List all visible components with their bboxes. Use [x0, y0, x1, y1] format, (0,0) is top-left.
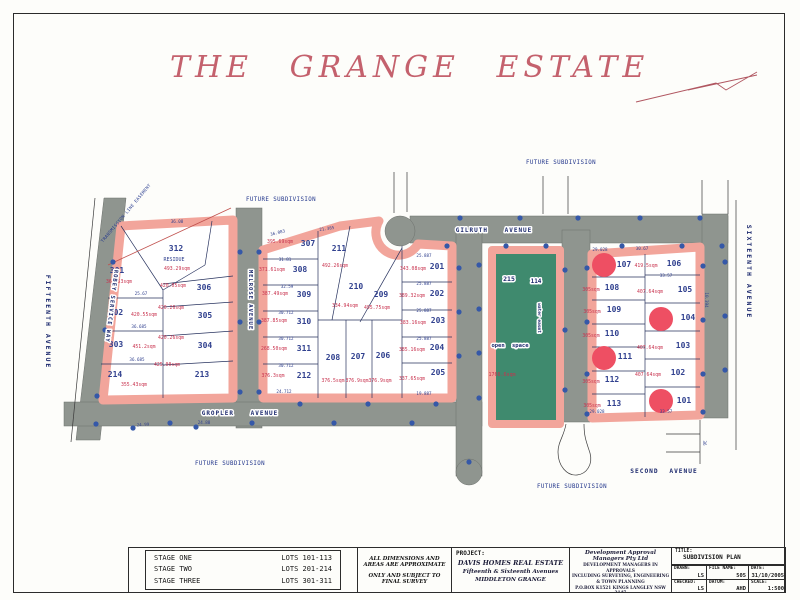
lot-area: 343.08sqm — [400, 266, 426, 272]
lot-number: 110 — [605, 329, 620, 338]
survey-marker-dot — [433, 401, 438, 406]
survey-marker-dot — [562, 387, 567, 392]
survey-marker-dot — [584, 371, 589, 376]
survey-marker-dot — [679, 243, 684, 248]
lot-number: 307 — [301, 239, 316, 248]
dimension-label: 25.887 — [416, 281, 432, 286]
field-drawn: DRAWN: LS — [672, 565, 706, 579]
gilruth-cul-de-sac-bulb — [385, 216, 415, 246]
field-label: DATUM: — [709, 580, 746, 585]
survey-marker-dot — [94, 393, 99, 398]
lot-number: 105 — [678, 285, 693, 294]
survey-marker-dot — [476, 306, 481, 311]
survey-marker-dot — [562, 327, 567, 332]
survey-marker-dot — [637, 215, 642, 220]
survey-marker-dot — [130, 425, 135, 430]
survey-marker-dot — [444, 243, 449, 248]
lot-number: 107 — [617, 260, 632, 269]
road-right — [562, 230, 590, 422]
lot-area: 337.65sqm — [399, 376, 425, 382]
survey-marker-dot — [700, 317, 705, 322]
future-subdivision-label: FUTURE SUBDIVISION — [537, 484, 607, 490]
title-fields-grid: DRAWN: LS FILE NAME: 505 DATE: 31/10/200… — [672, 565, 785, 592]
survey-marker-dot — [584, 319, 589, 324]
dimension-label: 24.99 — [136, 422, 149, 428]
survey-marker-dot — [619, 243, 624, 248]
survey-marker-dot — [110, 259, 115, 264]
dimension-label: 30.712 — [278, 363, 294, 368]
lot-number: 106 — [667, 259, 682, 268]
lot-area: 407.64sqm — [637, 289, 663, 295]
lot-area: 365.53sqm — [106, 279, 132, 285]
lot-number: 310 — [297, 317, 312, 326]
lot-area: 389.32sqm — [399, 293, 425, 299]
lot-number: 202 — [430, 289, 445, 298]
lot-area: 420.55sqm — [131, 312, 157, 318]
lot-number: 101 — [677, 396, 692, 405]
street-label-melrose: MELROSE AVENUE — [247, 270, 253, 330]
dimension-label: 36.685 — [131, 324, 147, 329]
lot-area: 420.26sqm — [158, 305, 184, 311]
field-datum: DATUM: AHD — [706, 579, 748, 593]
lot-number: 205 — [431, 368, 446, 377]
lot-area: 425.00sqm — [154, 362, 180, 368]
survey-marker-dot — [256, 249, 261, 254]
project-label: PROJECT: — [456, 550, 565, 557]
lot-area: 371.61sqm — [259, 267, 285, 273]
consultant-line: INCLUDING SURVEYING, ENGINEERING & TOWN … — [570, 573, 671, 584]
lot-number: 210 — [349, 282, 364, 291]
survey-marker-dot — [331, 420, 336, 425]
drawing-title: TITLE: SUBDIVISION PLAN — [672, 548, 785, 565]
lot-area: 420.26sqm — [158, 335, 184, 341]
lot-note: RESIDUE — [163, 257, 184, 263]
dimension-label: 31.81 — [279, 257, 292, 262]
future-subdivision-label: FUTURE SUBDIVISION — [246, 197, 316, 203]
stage-lots: LOTS 301-311 — [281, 576, 332, 587]
survey-marker-dot — [476, 262, 481, 267]
lot-area: 376.9sqm — [368, 378, 391, 384]
water-easement-label: water easmt — [536, 303, 542, 333]
lot-area: 495.75sqm — [364, 305, 390, 311]
stage-lots: LOTS 101-113 — [281, 553, 332, 564]
future-culdesac-outline — [558, 424, 591, 475]
lot-number: 212 — [297, 371, 312, 380]
survey-marker-dot — [719, 243, 724, 248]
field-label: DRAWN: — [674, 566, 704, 571]
field-value: AHD — [709, 586, 746, 592]
project-name: DAVIS HOMES REAL ESTATE — [456, 559, 565, 567]
stage-row: STAGE TWO LOTS 201-214 — [154, 564, 332, 575]
drawing-title-box: TITLE: SUBDIVISION PLAN DRAWN: LS FILE N… — [672, 547, 786, 593]
survey-marker-dot — [237, 319, 242, 324]
lot-area: 420.05sqm — [160, 283, 186, 289]
lot-number: 209 — [374, 290, 389, 299]
title-block: STAGE ONE LOTS 101-113 STAGE TWO LOTS 20… — [128, 547, 786, 593]
dimension-label: 30.712 — [278, 336, 294, 341]
lot-area: 419.5sqm — [634, 263, 657, 269]
stages-box: STAGE ONE LOTS 101-113 STAGE TWO LOTS 20… — [128, 547, 358, 593]
dimension-label: 19.887 — [416, 391, 432, 396]
survey-marker-dot — [456, 265, 461, 270]
dimension-label: 36.685 — [129, 357, 145, 362]
survey-marker-dot — [722, 367, 727, 372]
lot-number: 113 — [607, 399, 622, 408]
open-space-area: 1766.6sqm — [488, 372, 515, 378]
lot-area: 268.50sqm — [261, 346, 287, 352]
dimension-label: 10.394 — [704, 292, 709, 308]
survey-marker-dot — [700, 409, 705, 414]
future-subdivision-label: FUTURE SUBDIVISION — [195, 461, 265, 467]
survey-marker-dot — [237, 249, 242, 254]
dimension-label: 30.712 — [278, 310, 294, 315]
survey-marker-dot — [700, 263, 705, 268]
lot-area: 376.9sqm — [345, 378, 368, 384]
dimension-label: 24.712 — [276, 389, 292, 394]
project-box: PROJECT: DAVIS HOMES REAL ESTATE Fifteen… — [452, 547, 570, 593]
street-label-sixteenth: SIXTEENTH AVENUE — [745, 225, 753, 320]
field-label: DATE: — [751, 566, 784, 571]
lot-number: 109 — [607, 305, 622, 314]
dimension-label: 33.57 — [660, 273, 673, 278]
sold-lot-marker — [649, 307, 673, 331]
lot-area: 407.64sqm — [637, 345, 663, 351]
dimension-label: 29.028 — [592, 247, 608, 252]
consultant-box: Development Approval Managers Pty Ltd DE… — [570, 547, 672, 593]
lot-number: 103 — [676, 341, 691, 350]
dimension-label: 25.67 — [135, 291, 148, 296]
survey-marker-dot — [722, 259, 727, 264]
dimension-label: 36.083 — [270, 228, 286, 237]
dimension-label: 25.887 — [416, 308, 432, 313]
lot-area: 376.3sqm — [261, 373, 284, 379]
open-space-parcel-number: 215 — [503, 275, 515, 283]
survey-marker-dot — [297, 401, 302, 406]
survey-marker-dot — [700, 371, 705, 376]
stage-name: STAGE THREE — [154, 576, 200, 587]
project-suburb: MIDDLETON GRANGE — [456, 577, 565, 583]
lot-area: 355.43sqm — [121, 382, 147, 388]
future-subdivision-label: FUTURE SUBDIVISION — [526, 160, 596, 166]
survey-marker-dot — [237, 389, 242, 394]
street-label-gropler: GROPLER AVENUE — [202, 410, 279, 417]
survey-marker-dot — [249, 420, 254, 425]
field-value: LS — [674, 586, 704, 592]
lot-area: 334.94sqm — [332, 303, 358, 309]
survey-marker-dot — [409, 420, 414, 425]
lot-number: 206 — [376, 351, 391, 360]
plan-sheet: THE GRANGE ESTATE 3013 — [0, 0, 800, 600]
survey-marker-dot — [543, 243, 548, 248]
survey-marker-dot — [457, 215, 462, 220]
lot-area: 387.85sqm — [261, 318, 287, 324]
disclaimer-line: ONLY AND SUBJECT TO FINAL SURVEY — [363, 573, 446, 585]
field-value: 1:500 — [751, 586, 784, 592]
lot-number: 203 — [431, 316, 446, 325]
lot-area: 376.5sqm — [321, 378, 344, 384]
lot-number: 204 — [430, 343, 445, 352]
lot-number: 309 — [297, 290, 312, 299]
survey-marker-dot — [466, 459, 471, 464]
survey-marker-dot — [575, 215, 580, 220]
survey-marker-dot — [517, 215, 522, 220]
project-address: Fifteenth & Sixteenth Avenues — [456, 569, 565, 575]
survey-marker-dot — [167, 420, 172, 425]
lot-number: 207 — [351, 352, 366, 361]
lot-number: 311 — [297, 344, 312, 353]
lot-area: 385.16sqm — [399, 347, 425, 353]
survey-marker-dot — [365, 401, 370, 406]
open-space-lot-number: 114 — [531, 278, 542, 285]
stage-name: STAGE ONE — [154, 553, 192, 564]
lot-number: 112 — [605, 375, 620, 384]
lot-number: 104 — [681, 313, 696, 322]
field-date: DATE: 31/10/2005 — [748, 565, 786, 579]
lot-number: 303 — [109, 340, 124, 349]
lot-area: 395.69sqm — [267, 239, 293, 245]
red-scribble-mark — [636, 72, 757, 102]
sold-lot-marker — [592, 346, 616, 370]
disclaimer-line: ALL DIMENSIONS AND AREAS ARE APPROXIMATE — [363, 556, 446, 568]
lot-number: 312 — [169, 244, 184, 253]
field-label: FILE NAME: — [709, 566, 746, 571]
lot-number: 102 — [671, 368, 686, 377]
field-checked: CHECKED: LS — [672, 579, 706, 593]
stage-row: STAGE ONE LOTS 101-113 — [154, 553, 332, 564]
survey-marker-dot — [503, 243, 508, 248]
survey-marker-dot — [193, 424, 198, 429]
dimension-label: 29.028 — [589, 409, 605, 414]
lot-number: 208 — [326, 353, 341, 362]
lot-area: 387.49sqm — [262, 291, 288, 297]
street-label-gilruth: GILRUTH AVENUE — [456, 227, 533, 234]
dimension-label: 33.57 — [660, 409, 673, 414]
lot-number: 201 — [430, 262, 445, 271]
lot-area: 305sqm — [582, 333, 599, 339]
lot-area: 451.2sqm — [132, 344, 155, 350]
subdivision-plan-drawing: 301365.53sqm302420.55sqm303451.2sqm21435… — [0, 0, 800, 600]
lot-number: 306 — [197, 283, 212, 292]
lot-area: 493.29sqm — [164, 266, 190, 272]
lot-area: 305sqm — [582, 379, 599, 385]
stage-row: STAGE THREE LOTS 301-311 — [154, 576, 332, 587]
consultant-name: Development Approval Managers Pty Ltd — [570, 550, 671, 562]
second-avenue-kerb-lines — [666, 420, 700, 464]
lot-number: 305 — [198, 311, 213, 320]
stages-table: STAGE ONE LOTS 101-113 STAGE TWO LOTS 20… — [145, 550, 341, 590]
field-label: CHECKED: — [674, 580, 704, 585]
lot-number: 111 — [618, 352, 633, 361]
lot-number: 108 — [605, 283, 620, 292]
open-space-label: open space — [491, 343, 529, 349]
survey-marker-dot — [456, 353, 461, 358]
lot-number: 214 — [108, 370, 123, 379]
lot-area: 492.26sqm — [322, 263, 348, 269]
survey-marker-dot — [562, 267, 567, 272]
dimension-label: 36.08 — [171, 219, 184, 224]
stage-lots: LOTS 201-214 — [281, 564, 332, 575]
lot-number: 308 — [293, 265, 308, 274]
stage-name: STAGE TWO — [154, 564, 192, 575]
sold-lot-marker — [592, 253, 616, 277]
lot-number: 211 — [332, 244, 347, 253]
dimension-label: 25.887 — [416, 253, 432, 258]
drawing-title-value: SUBDIVISION PLAN — [683, 554, 782, 561]
lot-area: 305sqm — [583, 309, 600, 315]
field-scale: SCALE: 1:500 — [748, 579, 786, 593]
lot-area: 407.64sqm — [635, 372, 661, 378]
street-label-second: SECOND AVENUE — [630, 468, 697, 475]
survey-marker-dot — [476, 350, 481, 355]
survey-marker-dot — [697, 215, 702, 220]
survey-marker-dot — [584, 265, 589, 270]
survey-marker-dot — [256, 389, 261, 394]
lot-area: 305sqm — [582, 287, 599, 293]
consultant-line: P.O.BOX K1521 KINGS LANGLEY NSW 2147 — [570, 585, 671, 593]
field-label: SCALE: — [751, 580, 784, 585]
survey-marker-dot — [93, 421, 98, 426]
disclaimer-box: ALL DIMENSIONS AND AREAS ARE APPROXIMATE… — [358, 547, 452, 593]
survey-marker-dot — [722, 313, 727, 318]
dimension-label: 24.88 — [198, 420, 211, 425]
dimension-label: 36 — [702, 440, 707, 446]
survey-marker-dot — [456, 309, 461, 314]
field-filename: FILE NAME: 505 — [706, 565, 748, 579]
lot-area: 383.16sqm — [400, 320, 426, 326]
dimension-label: 32.59 — [281, 284, 294, 289]
lot-number: 304 — [198, 341, 213, 350]
dimension-label: 30.67 — [636, 246, 649, 251]
lot-number: 213 — [195, 370, 210, 379]
dimension-label: 25.887 — [416, 336, 432, 341]
street-label-fifteenth: FIFTEENTH AVENUE — [44, 275, 52, 370]
consultant-line: DEVELOPMENT MANAGERS IN APPROVALS — [570, 562, 671, 573]
survey-marker-dot — [476, 395, 481, 400]
